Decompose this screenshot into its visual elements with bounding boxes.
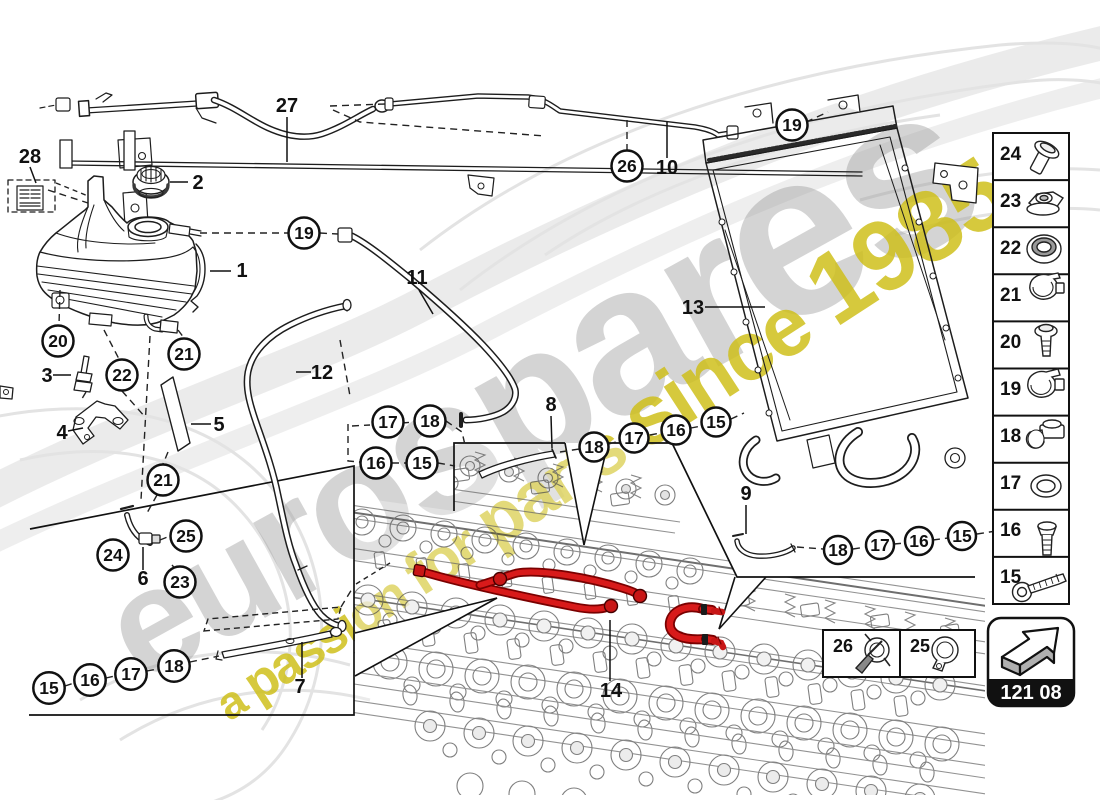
svg-text:17: 17 [624, 428, 643, 448]
svg-text:17: 17 [870, 535, 889, 555]
svg-text:15: 15 [952, 526, 972, 546]
svg-text:21: 21 [153, 470, 173, 490]
svg-text:2: 2 [192, 172, 203, 194]
svg-text:9: 9 [740, 483, 751, 505]
svg-text:16: 16 [366, 453, 386, 473]
svg-text:23: 23 [170, 572, 190, 592]
svg-text:19: 19 [1000, 379, 1021, 400]
svg-text:18: 18 [584, 437, 604, 457]
svg-text:16: 16 [1000, 520, 1021, 541]
svg-text:17: 17 [121, 664, 140, 684]
svg-text:13: 13 [682, 297, 704, 319]
svg-text:3: 3 [41, 365, 52, 387]
svg-text:18: 18 [420, 411, 440, 431]
svg-text:25: 25 [176, 526, 196, 546]
svg-text:19: 19 [782, 115, 802, 135]
svg-text:17: 17 [378, 412, 397, 432]
svg-text:20: 20 [1000, 332, 1021, 353]
svg-text:8: 8 [545, 394, 556, 416]
svg-text:10: 10 [656, 157, 678, 179]
svg-text:7: 7 [294, 676, 305, 698]
svg-text:22: 22 [112, 365, 132, 385]
svg-text:24: 24 [103, 545, 123, 565]
svg-text:5: 5 [213, 414, 224, 436]
svg-text:11: 11 [406, 267, 427, 289]
svg-text:24: 24 [1000, 144, 1022, 165]
svg-text:121 08: 121 08 [1000, 682, 1061, 704]
svg-text:17: 17 [1000, 473, 1021, 494]
svg-text:15: 15 [39, 678, 59, 698]
svg-text:6: 6 [137, 568, 148, 590]
svg-text:25: 25 [910, 636, 930, 656]
svg-text:16: 16 [666, 420, 686, 440]
svg-text:16: 16 [909, 531, 929, 551]
svg-text:12: 12 [311, 362, 333, 384]
svg-text:20: 20 [48, 331, 68, 351]
svg-text:26: 26 [617, 156, 637, 176]
svg-text:1: 1 [236, 260, 247, 282]
svg-text:28: 28 [19, 146, 41, 168]
svg-text:27: 27 [276, 95, 298, 117]
svg-text:22: 22 [1000, 238, 1021, 259]
svg-text:21: 21 [174, 344, 194, 364]
svg-text:23: 23 [1000, 191, 1021, 212]
svg-text:18: 18 [164, 656, 184, 676]
svg-text:26: 26 [833, 636, 853, 656]
svg-text:4: 4 [56, 422, 68, 444]
svg-text:18: 18 [1000, 426, 1021, 447]
svg-text:15: 15 [706, 412, 726, 432]
svg-text:15: 15 [412, 453, 432, 473]
svg-text:16: 16 [80, 670, 100, 690]
svg-text:18: 18 [828, 540, 848, 560]
svg-text:14: 14 [600, 680, 623, 702]
svg-text:21: 21 [1000, 285, 1022, 306]
svg-text:19: 19 [294, 223, 314, 243]
